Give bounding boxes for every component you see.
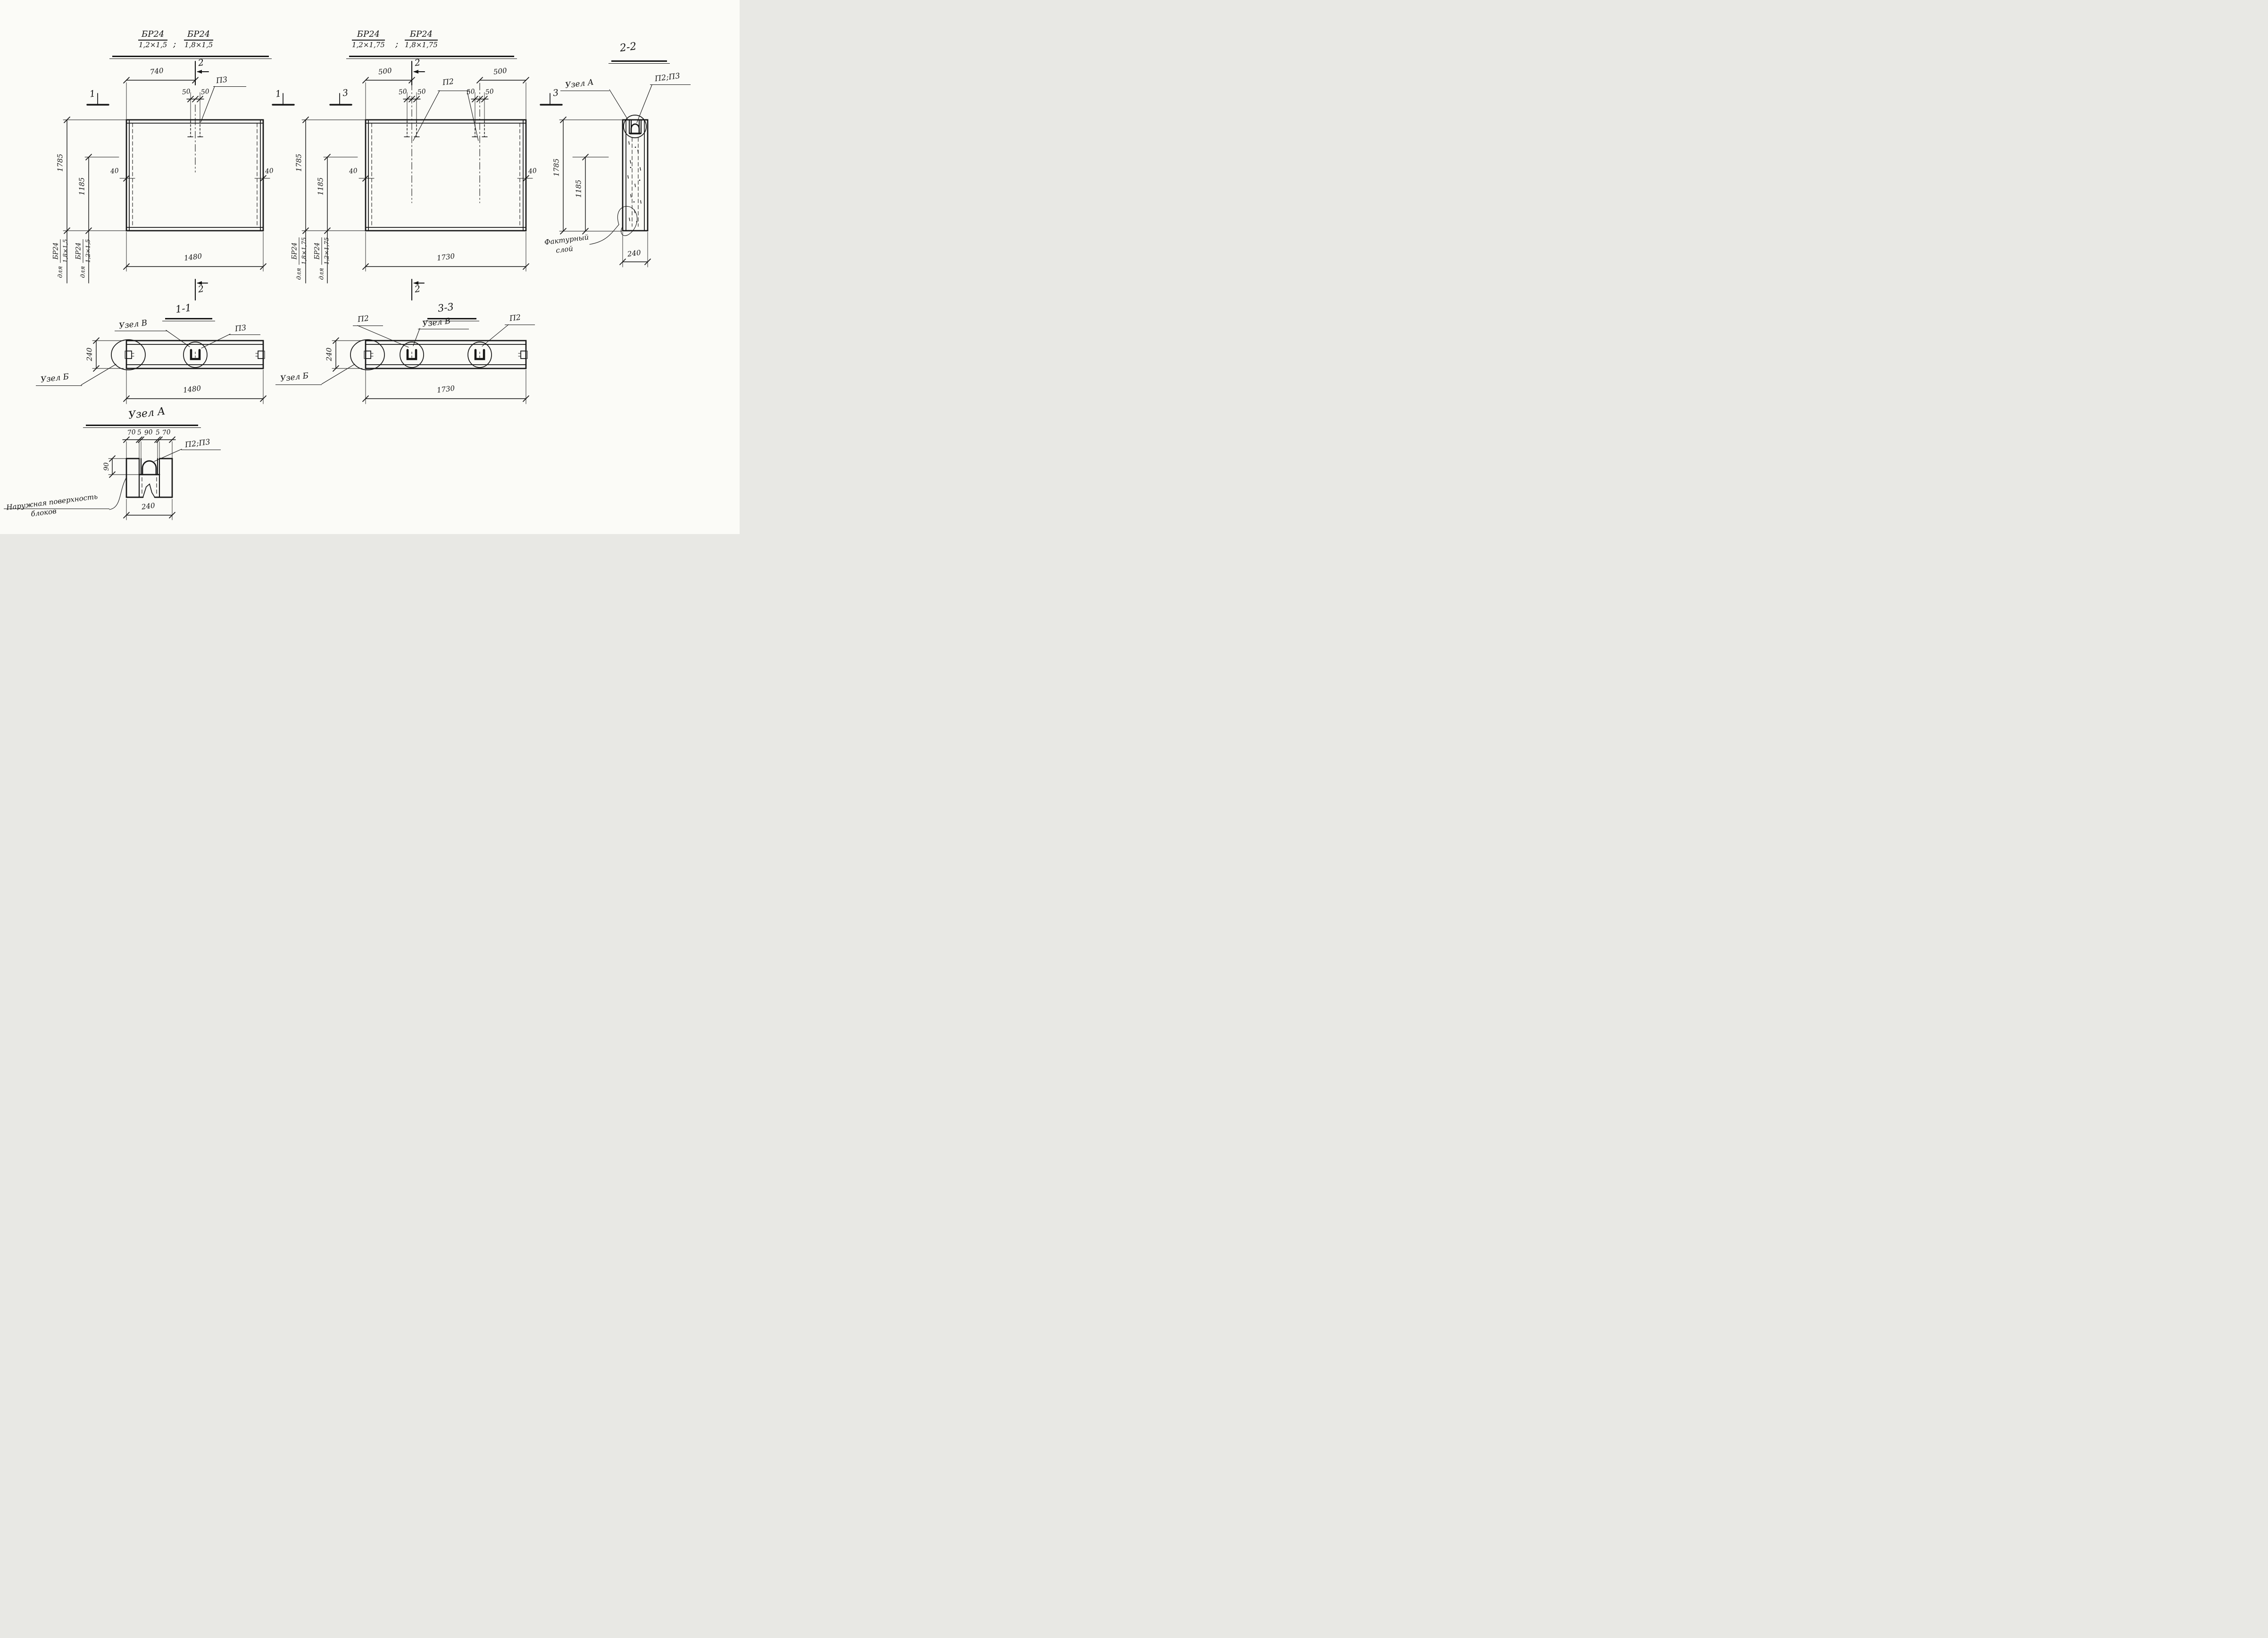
dim-50-right: 50 [200,88,209,96]
dim-1785: 1785 [296,154,303,172]
label-p2: П2 [442,78,454,87]
title-den: 1,8×1,5 [184,41,213,49]
label-uzel-b-underline [36,385,82,386]
note-den: 1,8×1,75 [300,237,308,265]
title-br24-18x15: БР241,8×1,5 [184,30,213,49]
label-uzel-b-33-underline [275,384,322,385]
label-uzel-a-underline [560,91,609,91]
panel-br24-175-view [302,61,562,300]
label-p3-section: П3 [234,324,247,333]
label-p3-section-underline [229,334,260,335]
dim-40-left: 40 [349,167,358,175]
dim-1185-22: 1185 [575,180,583,198]
marker-2-top-right-panel: 2 [414,58,421,67]
title-br24-18x175: БР241,8×1,75 [405,30,438,49]
dim-50-left: 50 [182,88,191,96]
dim-70-right: 70 [162,429,171,436]
marker-1-right: 1 [275,89,282,99]
note-prefix: для [318,268,325,280]
dim-1185: 1185 [317,177,325,195]
dim-40-left: 40 [110,167,119,175]
label-p2p3-detail-underline [181,450,221,450]
note-den: 1,8×1,5 [61,239,69,263]
label-uzel-v-underline [115,331,167,331]
dim-1785-22: 1785 [553,159,560,176]
dim-90-left: 90 [103,462,110,471]
title-num: БР24 [184,30,213,41]
dim-40-right: 40 [265,167,274,175]
title-num: БР24 [352,30,385,41]
section-1-1-title: 1-1 [175,303,192,315]
panel-br24-15-view [63,61,294,300]
dim-50-b: 50 [417,88,426,96]
title-underline [349,56,514,57]
dim-90-top: 90 [144,429,153,436]
dim-1480-section: 1480 [183,385,201,394]
label-p2-right: П2 [509,314,521,323]
note-for-br24-12x175: для БР241,2×1,75 [314,237,330,280]
section-1-1-underline [165,318,212,319]
section-1-1-underline-thin [162,321,215,321]
dim-5-right: 5 [155,429,160,436]
note-num: БР24 [291,237,300,265]
title-br24-12x15: БР241,2×1,5 [138,30,167,49]
note-prefix: для [80,266,87,278]
label-p2-left-underline [353,326,383,326]
dim-1185: 1185 [79,177,86,195]
dim-240-22: 240 [627,249,641,258]
marker-2-bottom-left-panel: 2 [198,284,204,294]
drawing-linework [0,0,740,534]
dim-240: 240 [86,348,93,361]
detail-title-underline [86,425,198,426]
dim-70-left: 70 [127,429,136,436]
dim-1480: 1480 [183,253,202,262]
title-den: 1,8×1,75 [405,41,438,49]
title-separator: ; [173,40,176,49]
dim-50-c: 50 [466,88,475,96]
note-prefix: для [296,268,303,280]
title-br24-12x175: БР241,2×1,75 [352,30,385,49]
dim-5-left: 5 [137,429,142,436]
note-for-br24-18x15: для БР241,8×1,5 [52,239,69,278]
detail-title-underline-thin [83,427,201,428]
title-underline-thin [346,58,517,59]
label-p2-right-underline [505,325,535,325]
note-for-br24-18x175: для БР241,8×1,75 [291,237,308,280]
marker-3-right: 3 [552,88,559,98]
marker-1-left: 1 [89,89,96,99]
label-p2-underline [438,91,470,91]
label-p3-underline [213,86,246,87]
note-num: БР24 [75,239,83,263]
dim-740: 740 [150,67,164,75]
note-for-br24-12x15: для БР241,2×1,5 [75,239,92,278]
title-num: БР24 [138,30,167,41]
dim-500-left: 500 [378,67,392,75]
note-num: БР24 [52,239,61,263]
marker-3-left: 3 [342,88,349,98]
label-outer-surface-underline [4,509,109,509]
dim-50-d: 50 [485,88,494,96]
dim-50-a: 50 [398,88,407,96]
section-3-3-drawing [322,325,529,404]
dim-500-right: 500 [493,67,507,75]
marker-2-bottom-right-panel: 2 [414,284,421,294]
title-num: БР24 [405,30,438,41]
dim-240-33: 240 [326,348,333,361]
label-p3: П3 [216,76,228,85]
note-den: 1,2×1,5 [83,239,92,263]
section-2-2-title: 2-2 [619,42,637,54]
note-den: 1,2×1,75 [322,237,330,265]
label-uzel-v-33-underline [418,329,469,329]
label-p2p3-underline [650,84,691,85]
title-underline-thin [109,58,272,59]
title-den: 1,2×1,5 [138,41,167,49]
dim-240-detail: 240 [141,502,155,510]
dim-1785: 1785 [57,154,64,172]
label-factur-line2: слой [555,244,574,255]
title-separator: ; [395,40,398,49]
note-prefix: для [57,266,64,278]
title-underline [112,56,269,57]
label-p2-left: П2 [357,315,369,324]
note-num: БР24 [314,237,322,265]
dim-1730-section: 1730 [436,385,455,394]
section-3-3-title: 3-3 [437,302,454,314]
section-1-1-drawing [81,330,266,404]
blueprint-page: БР241,2×1,5 ; БР241,8×1,5 БР241,2×1,75 ;… [0,0,740,534]
section-2-2-underline-thin [609,63,670,64]
dim-1730: 1730 [436,253,455,262]
marker-2-top-left-panel: 2 [198,58,204,67]
dim-40-right: 40 [528,167,537,175]
title-den: 1,2×1,75 [352,41,385,49]
section-2-2-underline [611,60,667,62]
